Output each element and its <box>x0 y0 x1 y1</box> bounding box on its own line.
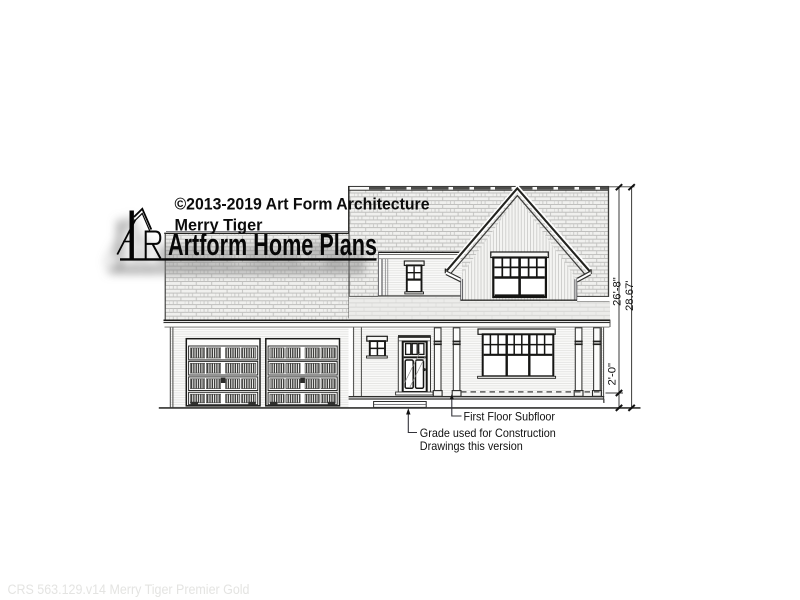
svg-text:Drawings this version: Drawings this version <box>420 440 523 453</box>
svg-text:28.67': 28.67' <box>624 281 636 311</box>
svg-text:©2013-2019 Art Form Architectu: ©2013-2019 Art Form Architecture <box>175 196 430 214</box>
svg-text:Artform Home Plans: Artform Home Plans <box>168 228 377 262</box>
svg-text:26'-8": 26'-8" <box>612 277 624 306</box>
svg-text:First Floor Subfloor: First Floor Subfloor <box>464 410 556 423</box>
svg-text:CRS 563.129.v14 Merry Tiger Pr: CRS 563.129.v14 Merry Tiger Premier Gold <box>8 582 250 597</box>
svg-text:2'-0": 2'-0" <box>607 363 619 386</box>
svg-text:Grade used for Construction: Grade used for Construction <box>420 427 556 440</box>
